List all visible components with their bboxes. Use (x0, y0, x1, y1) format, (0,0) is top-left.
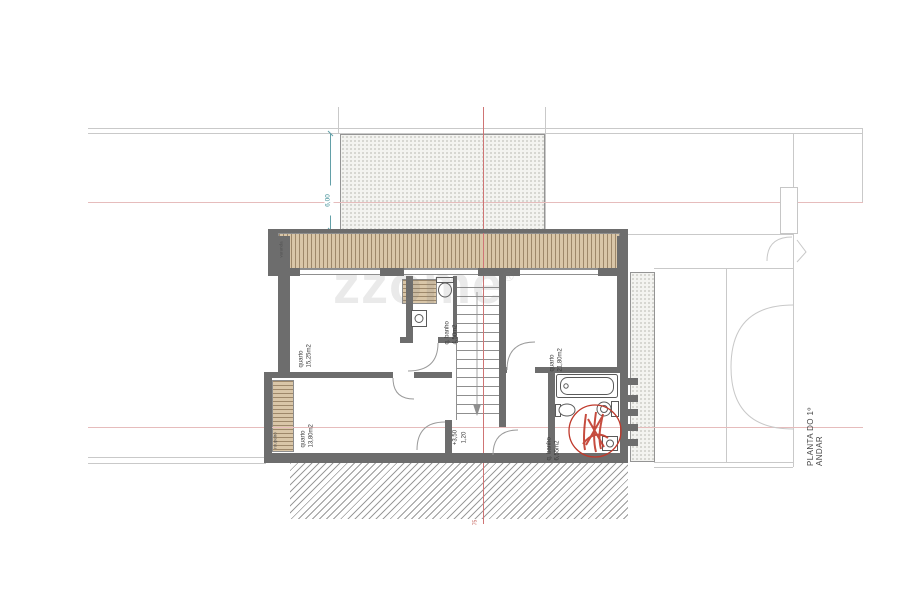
room-name: quarto (298, 324, 306, 368)
dimension-label-terrace: 6,00 (325, 186, 334, 216)
room-label-bedroom2: quarto 21,80m2 (549, 328, 564, 372)
level-label: +3,50 (453, 423, 462, 453)
room-area: 4,50m2 (452, 301, 460, 345)
floor-plan-canvas: quarto 15,25m2 q. banho 4,50m2 quarto 21… (0, 0, 900, 597)
room-name: q. banho (444, 301, 452, 345)
room-area: 6,55m2 (554, 417, 562, 461)
neighbour-door-arcs (731, 237, 806, 429)
balcony-label: varanda (279, 235, 288, 265)
room-name: quarto (300, 404, 308, 448)
axis-mark-label: 75 (473, 508, 482, 538)
room-area: 15,25m2 (306, 324, 314, 368)
toilet-icon (439, 283, 452, 297)
toilet-tank-icon (437, 278, 454, 283)
architect-stamp (569, 405, 621, 457)
sink2-icon (603, 437, 618, 451)
room-label-bath2: q. banho 6,55m2 (546, 417, 561, 461)
sheet-title: PLANTA DO 1º ANDAR (806, 382, 824, 466)
stair-direction-arrow (473, 292, 481, 416)
sink-icon (412, 311, 427, 327)
room-name: quarto (549, 328, 557, 372)
room-area: 21,80m2 (557, 328, 565, 372)
bidet-icon (559, 404, 575, 416)
wardrobe-label: roupeiro (273, 426, 282, 456)
stair-width-label: 1,20 (462, 423, 471, 453)
room-area: 13,80m2 (308, 404, 316, 448)
stamp-signature (583, 412, 608, 452)
room-label-bedroom1: quarto 15,25m2 (298, 324, 313, 368)
room-label-bath1: q. banho 4,50m2 (444, 301, 459, 345)
room-label-bedroom3: quarto 13,80m2 (300, 404, 315, 448)
room-name: q. banho (546, 417, 554, 461)
plan-overlay (0, 0, 900, 597)
